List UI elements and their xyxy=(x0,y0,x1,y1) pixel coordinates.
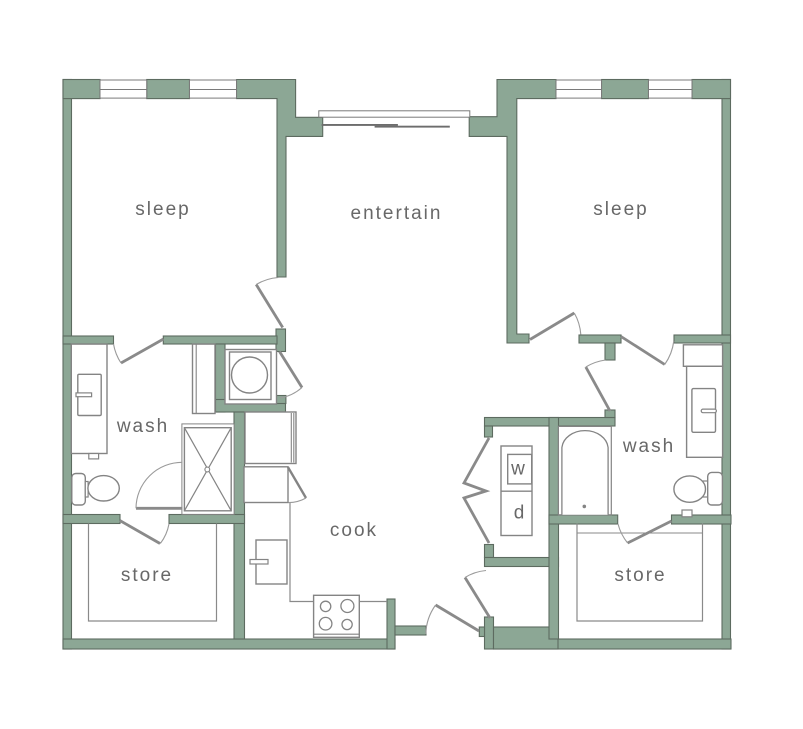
svg-text:w: w xyxy=(510,459,525,480)
svg-text:store: store xyxy=(614,565,666,586)
svg-text:store: store xyxy=(121,565,173,586)
svg-text:wash: wash xyxy=(622,436,675,457)
svg-text:d: d xyxy=(514,503,525,524)
svg-text:cook: cook xyxy=(330,520,378,541)
svg-text:wash: wash xyxy=(116,416,169,437)
svg-text:sleep: sleep xyxy=(135,199,190,220)
svg-text:entertain: entertain xyxy=(351,203,443,224)
svg-text:sleep: sleep xyxy=(593,199,648,220)
